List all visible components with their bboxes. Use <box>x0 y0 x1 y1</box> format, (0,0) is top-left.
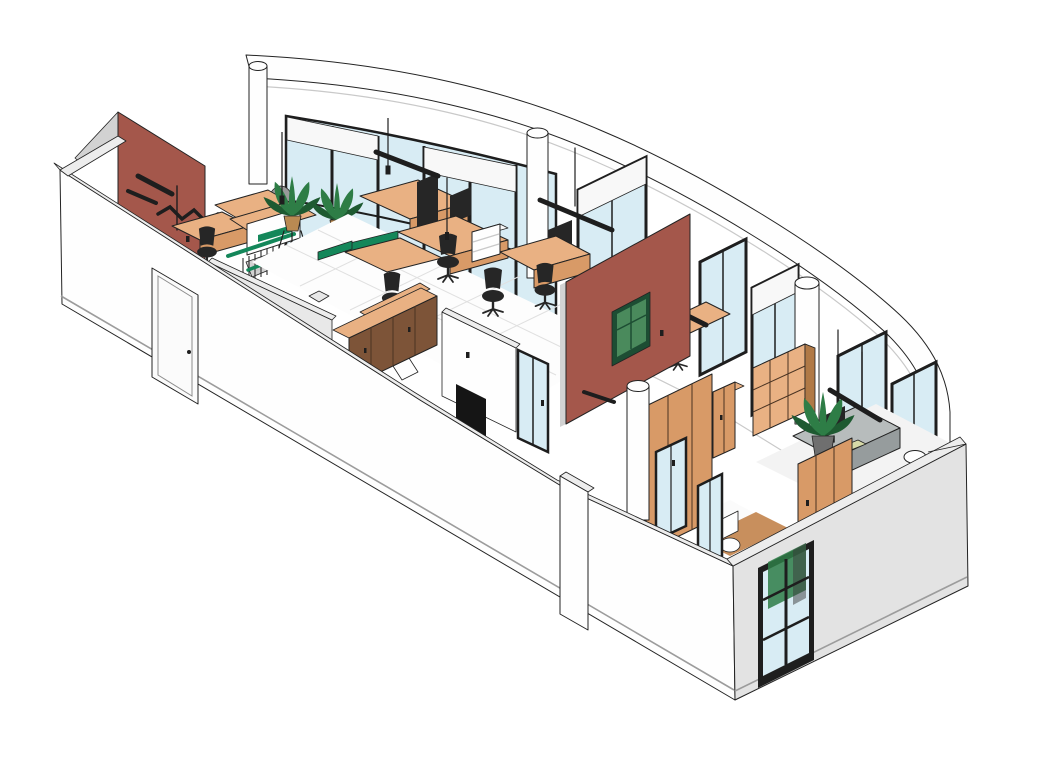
axonometric-office-scene <box>0 0 1045 768</box>
wall-switch <box>466 352 470 358</box>
wall-switch <box>806 500 809 506</box>
column <box>249 62 267 185</box>
spotlight <box>445 232 449 240</box>
door-handle <box>541 400 544 406</box>
plant-pot <box>284 216 301 231</box>
glass-door[interactable] <box>656 438 686 540</box>
interior-shadow <box>793 543 806 605</box>
door-handle <box>187 350 191 354</box>
column <box>627 381 649 521</box>
wall-edge <box>560 282 566 427</box>
glass-door[interactable] <box>518 350 548 452</box>
wall-switch <box>186 236 190 242</box>
locker-handle <box>364 348 367 353</box>
wardrobe-handle <box>720 415 723 420</box>
office-floorplan-render <box>0 0 1045 768</box>
wall-switch <box>672 460 675 466</box>
wardrobe <box>713 382 744 458</box>
locker-handle <box>408 327 411 332</box>
wall-switch <box>660 330 664 336</box>
